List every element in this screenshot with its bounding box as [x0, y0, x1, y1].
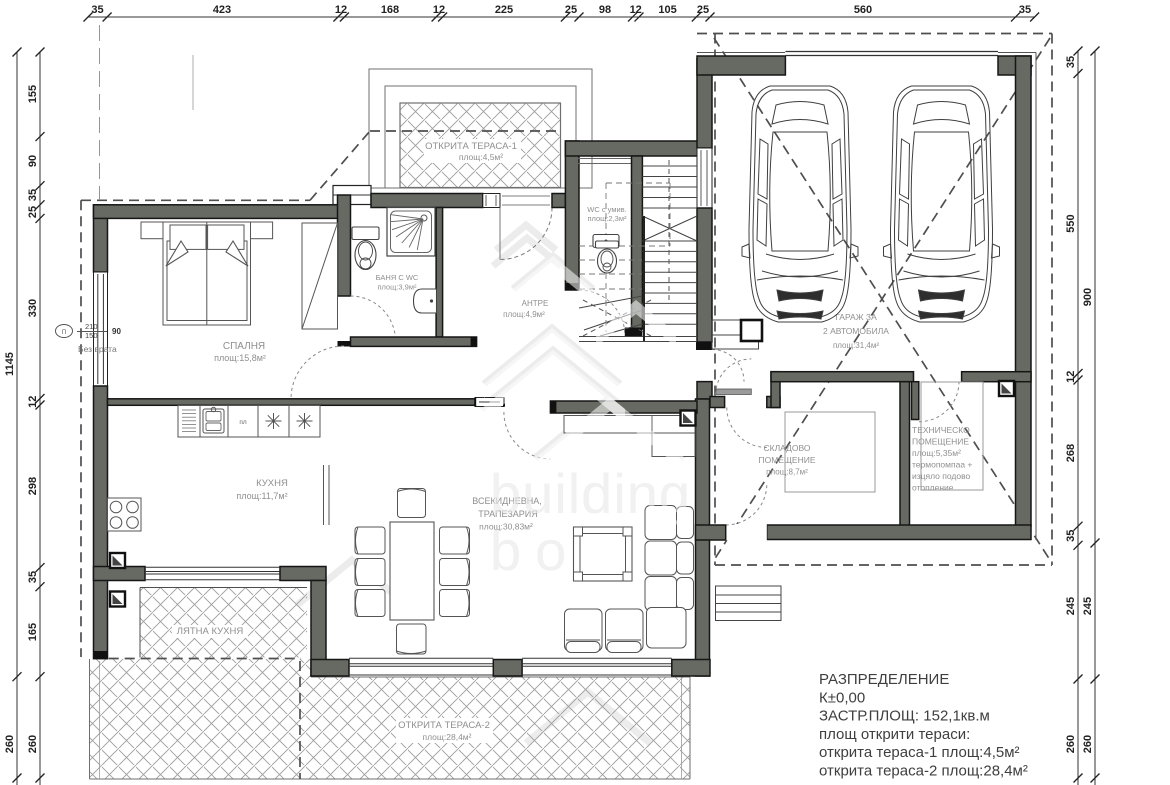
- svg-text:пл: пл: [239, 419, 247, 426]
- svg-text:ЛЯТНА КУХНЯ: ЛЯТНА КУХНЯ: [177, 626, 244, 637]
- svg-text:260: 260: [4, 735, 16, 753]
- svg-text:35: 35: [27, 571, 39, 583]
- svg-text:изцяло подово: изцяло подово: [912, 471, 971, 481]
- svg-text:площ:4,5м²: площ:4,5м²: [459, 152, 503, 162]
- svg-text:245: 245: [1082, 597, 1094, 615]
- svg-text:105: 105: [658, 4, 676, 16]
- svg-text:35: 35: [1065, 530, 1077, 542]
- svg-text:25: 25: [565, 4, 577, 16]
- svg-text:260: 260: [1065, 735, 1077, 753]
- svg-text:КУХНЯ: КУХНЯ: [256, 478, 288, 489]
- svg-text:165: 165: [27, 623, 39, 641]
- svg-text:168: 168: [381, 4, 399, 16]
- svg-text:building: building: [490, 462, 691, 525]
- svg-text:открита тераса-2 площ:28,4м²: открита тераса-2 площ:28,4м²: [819, 763, 1028, 780]
- svg-text:ГАРАЖ ЗА: ГАРАЖ ЗА: [835, 312, 877, 322]
- svg-text:25: 25: [27, 206, 39, 218]
- svg-text:225: 225: [495, 4, 513, 16]
- svg-text:открита тераса-1 площ:4,5м²: открита тераса-1 площ:4,5м²: [819, 744, 1020, 761]
- svg-text:330: 330: [27, 299, 39, 317]
- svg-text:площ:31,4м²: площ:31,4м²: [833, 341, 879, 350]
- svg-text:термопомпаа +: термопомпаа +: [912, 460, 972, 470]
- svg-text:90: 90: [27, 155, 39, 167]
- svg-text:К±0,00: К±0,00: [819, 689, 865, 706]
- svg-text:35: 35: [1019, 4, 1031, 16]
- svg-text:2 АВТОМОБИЛА: 2 АВТОМОБИЛА: [823, 326, 889, 336]
- svg-text:box: box: [490, 519, 622, 582]
- svg-text:268: 268: [1065, 444, 1077, 462]
- svg-text:отопление: отопление: [912, 483, 954, 493]
- svg-text:ЗАСТР.ПЛОЩ: 152,1кв.м: ЗАСТР.ПЛОЩ: 152,1кв.м: [819, 708, 990, 725]
- svg-text:90: 90: [112, 327, 121, 336]
- svg-text:ТЕХНИЧЕСКО: ТЕХНИЧЕСКО: [912, 425, 970, 435]
- svg-text:25: 25: [697, 4, 709, 16]
- svg-text:900: 900: [1082, 288, 1094, 306]
- svg-text:площ:2,3м²: площ:2,3м²: [587, 214, 627, 223]
- svg-text:П: П: [62, 330, 66, 336]
- svg-text:560: 560: [854, 4, 872, 16]
- svg-text:площ:28,4м²: площ:28,4м²: [423, 732, 472, 742]
- svg-text:12: 12: [433, 4, 445, 16]
- svg-text:ПОМЕЩЕНИЕ: ПОМЕЩЕНИЕ: [912, 437, 969, 447]
- svg-text:площ:4,9м²: площ:4,9м²: [503, 310, 545, 319]
- svg-text:1145: 1145: [4, 352, 16, 376]
- svg-text:площ:15,8м²: площ:15,8м²: [214, 353, 266, 363]
- svg-text:РАЗПРЕДЕЛЕНИЕ: РАЗПРЕДЕЛЕНИЕ: [819, 671, 949, 688]
- svg-text:площ:5,35м²: площ:5,35м²: [912, 448, 961, 458]
- svg-text:12: 12: [1065, 371, 1077, 383]
- svg-text:550: 550: [1065, 214, 1077, 232]
- svg-text:260: 260: [27, 735, 39, 753]
- svg-text:площ:11,7м²: площ:11,7м²: [236, 491, 287, 501]
- svg-text:155: 155: [27, 85, 39, 103]
- svg-text:12: 12: [630, 4, 642, 16]
- svg-text:БАНЯ С WC: БАНЯ С WC: [376, 273, 419, 282]
- svg-text:12: 12: [335, 4, 347, 16]
- svg-text:12: 12: [27, 396, 39, 408]
- svg-text:35: 35: [27, 189, 39, 201]
- svg-text:210: 210: [85, 322, 98, 331]
- svg-text:площ:3,9м²: площ:3,9м²: [377, 283, 417, 292]
- svg-text:98: 98: [599, 4, 611, 16]
- svg-text:WC с умив.: WC с умив.: [587, 205, 627, 214]
- svg-text:Без врата: Без врата: [78, 344, 117, 354]
- svg-text:298: 298: [27, 477, 39, 495]
- svg-text:ОТКРИТА ТЕРАСА-1: ОТКРИТА ТЕРАСА-1: [425, 141, 517, 152]
- svg-text:ПОМЕЩЕНИЕ: ПОМЕЩЕНИЕ: [758, 455, 815, 465]
- svg-text:СПАЛНЯ: СПАЛНЯ: [223, 341, 265, 352]
- svg-text:245: 245: [1065, 597, 1077, 615]
- svg-text:35: 35: [91, 4, 103, 16]
- svg-text:260: 260: [1082, 735, 1094, 753]
- svg-text:35: 35: [1065, 56, 1077, 68]
- svg-text:СКЛАДОВО: СКЛАДОВО: [764, 443, 811, 453]
- svg-text:АНТРЕ: АНТРЕ: [522, 299, 549, 308]
- svg-text:423: 423: [213, 4, 231, 16]
- svg-text:площ открити тераси:: площ открити тераси:: [819, 726, 970, 743]
- svg-text:площ:8,7м²: площ:8,7м²: [766, 468, 808, 477]
- svg-text:ОТКРИТА ТЕРАСА-2: ОТКРИТА ТЕРАСА-2: [398, 720, 490, 731]
- svg-text:150: 150: [85, 331, 98, 340]
